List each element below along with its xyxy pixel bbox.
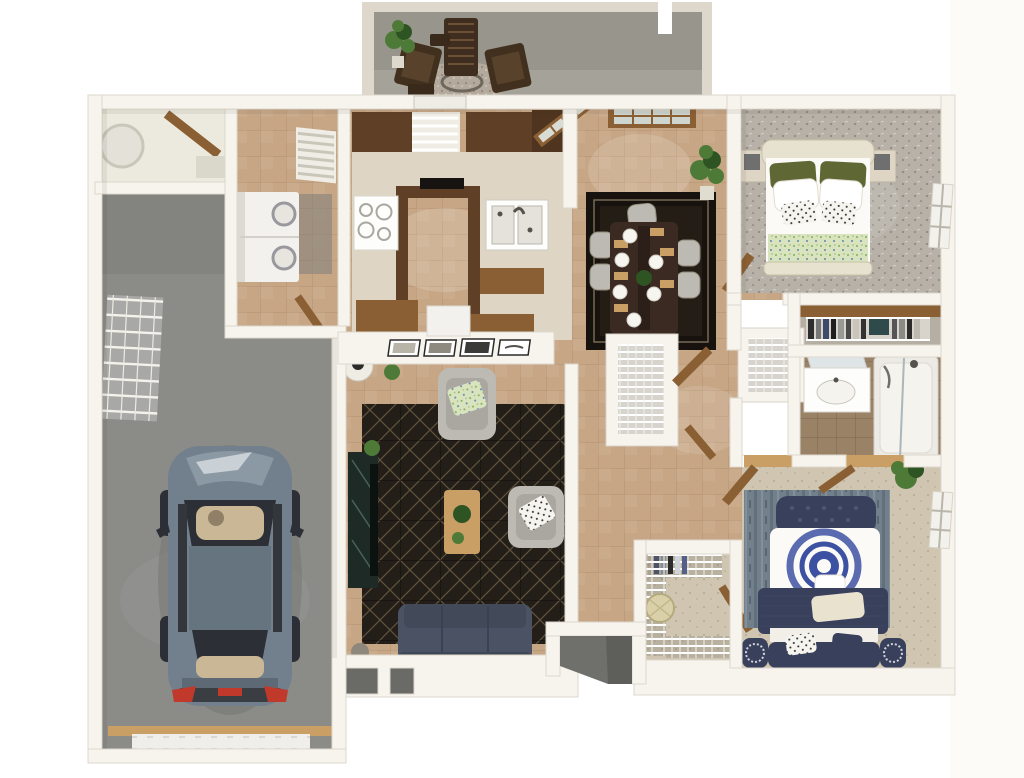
wall-dining-right [727,95,741,350]
washer-dryer [237,192,299,282]
right-light-streak [950,0,1024,778]
wall-closet-bath [788,345,941,357]
floor-plant [364,440,380,456]
car-center-light [218,688,242,696]
wall-living-right [565,364,578,622]
car [156,445,304,715]
speaker-cushion-left [742,638,768,668]
cooktop-hood [420,178,464,189]
wall-bedroom2-top-right [904,455,941,467]
tub-shower [874,357,938,459]
vanity-sink [817,380,855,404]
car-window-left [178,504,187,632]
wall-hall-bedroom2 [730,398,742,467]
window-recess-1 [344,668,378,694]
patio-wall-left [362,2,375,98]
lamp-left [744,154,760,170]
table-centerpiece [636,270,652,286]
bench-left [356,300,418,336]
patio-wall-gap [658,2,672,34]
wall-laundry-bottom [225,326,346,338]
wall-laundry-kitchen [338,109,350,326]
lamp-right [874,154,890,170]
car-steering-wheel [208,510,224,526]
kitchen-sink [486,200,548,250]
coffee-table [444,490,480,554]
floorplan-svg: 3D top-down apartment floor plan render [0,0,1024,778]
hanging-clothes [806,317,930,341]
wall-bedroom1-bottom [783,293,941,305]
range-stove [354,196,398,250]
wall-exterior-bottom-garage [88,749,346,763]
water-heater [101,125,143,167]
speaker-cushion-right [880,638,906,668]
kitchen-window [414,96,466,109]
small-plant [384,364,400,380]
wall-entry-right [632,636,646,684]
vanity-faucet [834,378,839,383]
wall-exterior-top [88,95,955,109]
kitchen-window-blinds [410,112,460,156]
armchair-2 [508,486,564,548]
wall-closet-right [730,540,742,668]
chaise-lounge [444,18,478,76]
patio-chair-partial [408,84,434,96]
bed-1 [762,140,874,275]
knit-pillow [811,591,865,622]
wall-utility-laundry [225,109,237,338]
shower-head [910,360,918,368]
armchair-1 [438,368,496,440]
closet-shelf-wood [800,305,941,317]
vanity [804,352,870,412]
floorplan-render: 3D top-down apartment floor plan render [0,0,1024,778]
bedroom2-window [929,491,953,548]
car-parcel-shelf [196,656,264,678]
wall-bedroom2-top-mid [792,455,846,467]
footboard-1 [764,262,872,275]
bench-island [480,268,544,294]
garage-door [132,734,310,751]
tv-console [348,452,378,588]
wall-bath-left [788,357,800,455]
garage-wire-shelf [101,295,163,422]
entry-porch-shadow [606,636,632,684]
window-recess-2 [390,668,414,694]
closet-shelf-bottom [666,636,736,658]
bedroom1-window [929,183,953,248]
car-roof [189,546,271,630]
wall-closet-top [634,540,742,554]
wall-utility-bottom [95,182,235,194]
dishwasher-box [427,306,470,336]
tv-screen [370,464,378,576]
wall-exterior-left [88,95,102,763]
frame-4 [498,340,530,355]
wall-entry-top [546,622,646,636]
bedroom1-closet [800,305,941,341]
laundry-vent [296,127,336,183]
car-dashboard [196,506,264,540]
wall-entry-left [546,636,560,676]
linen-closet-1 [606,334,678,446]
patio [362,2,712,102]
patio-side-table [430,34,450,46]
bed-2 [758,496,888,642]
wall-kitchen-dining [563,109,577,208]
car-window-right [273,504,282,632]
